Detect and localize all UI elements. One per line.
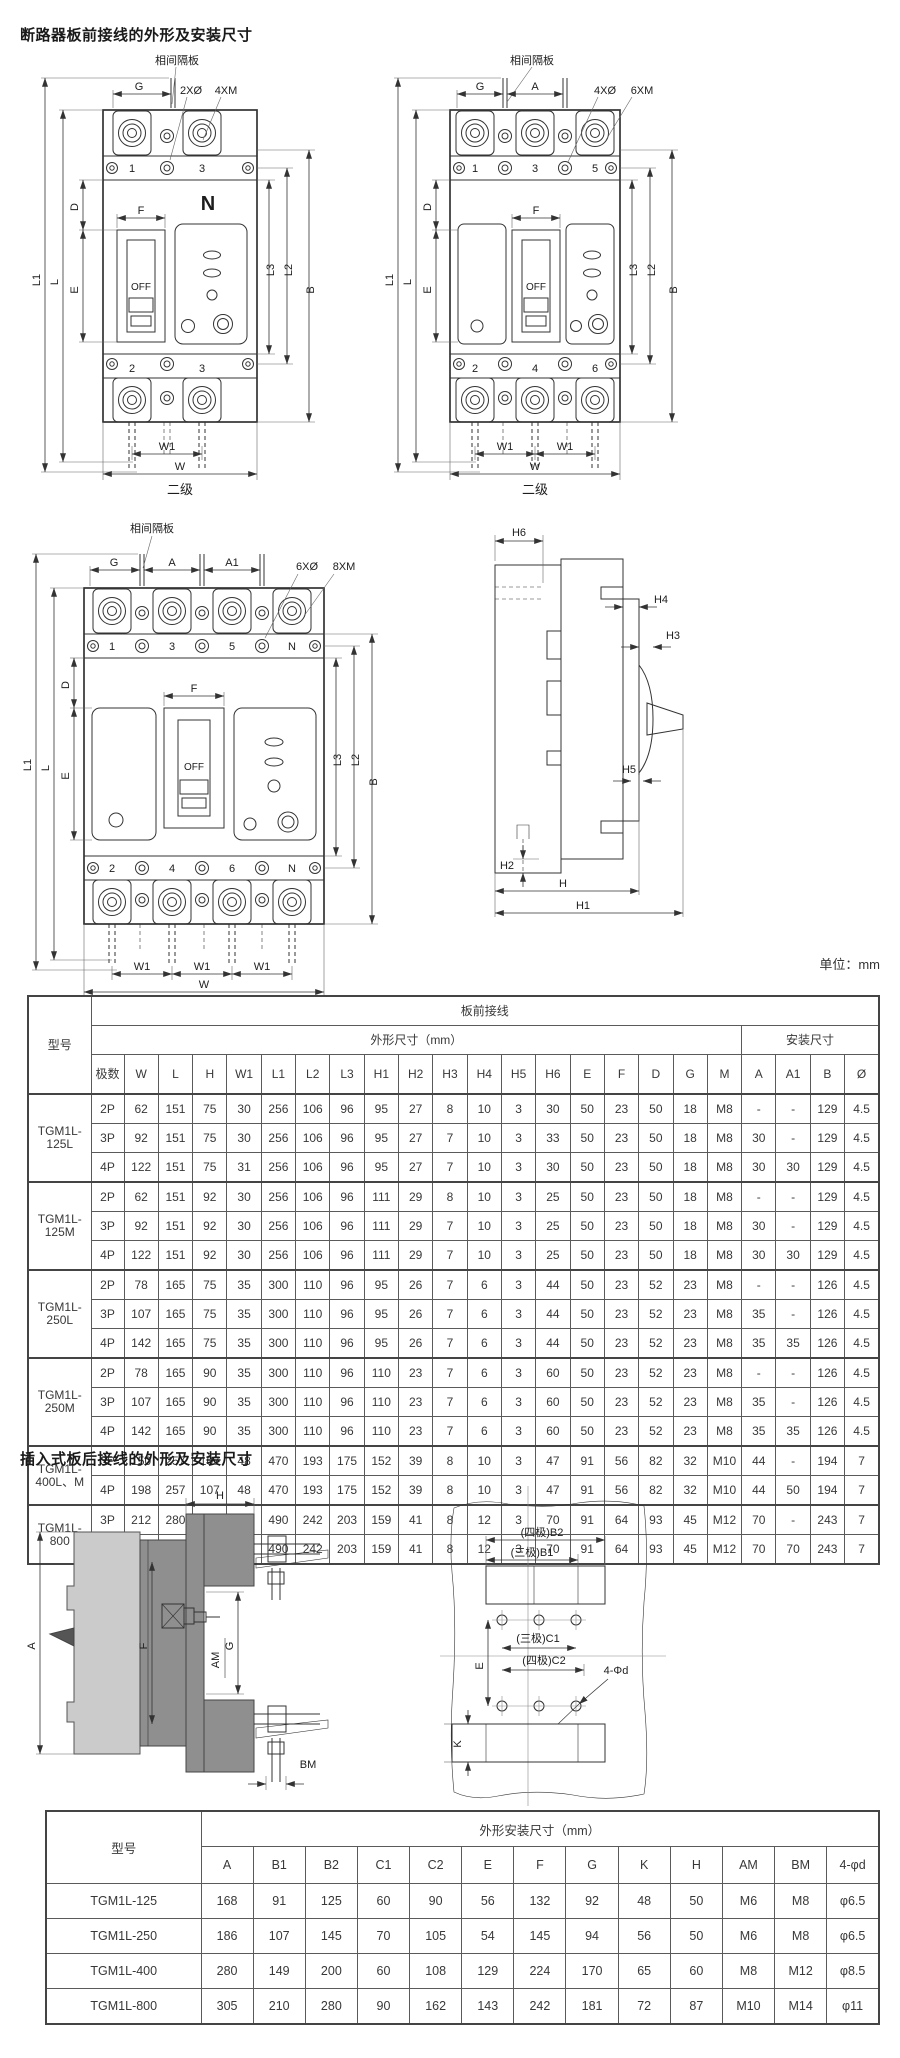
table1-cell: 18 — [673, 1212, 707, 1241]
drawing-cutout-plate: (四极)B2 (三极)B1 (三极)C1 (四极)C2 E K 4-Φd — [438, 1482, 668, 1810]
table1-cell: H6 — [536, 1055, 570, 1095]
table1-cell: 92 — [124, 1124, 158, 1153]
table1-cell: 75 — [193, 1153, 227, 1183]
table2-cell: 70 — [357, 1919, 409, 1954]
table1-cell: 96 — [330, 1329, 364, 1359]
dim-b: B — [368, 778, 380, 785]
table1-cell: 7 — [433, 1124, 467, 1153]
table1-cell: 110 — [296, 1329, 330, 1359]
table1-cell: 4.5 — [845, 1094, 879, 1124]
table1-cell: 7 — [433, 1358, 467, 1388]
table1-cell: 3 — [501, 1182, 535, 1212]
table1-cell: 23 — [604, 1417, 638, 1447]
table1-cell: 111 — [364, 1241, 398, 1271]
table1-cell: 175 — [330, 1446, 364, 1476]
table1-cell: 52 — [639, 1358, 673, 1388]
table1-cell: 23 — [604, 1388, 638, 1417]
table2-cell: 305 — [201, 1989, 253, 2025]
table1-cell: 6 — [467, 1270, 501, 1300]
table1-cell: 45 — [673, 1505, 707, 1535]
dim-l: L — [40, 765, 52, 771]
table1-cell: 4.5 — [845, 1388, 879, 1417]
barrier-label: 相间隔板 — [510, 53, 554, 67]
table1-cell: 29 — [399, 1212, 433, 1241]
table1-cell: 151 — [158, 1124, 192, 1153]
table1-cell: 10 — [467, 1446, 501, 1476]
table1-cell: 26 — [399, 1329, 433, 1359]
table1-cell: 60 — [536, 1417, 570, 1447]
table1-cell: 75 — [193, 1329, 227, 1359]
table1-cell: H — [193, 1055, 227, 1095]
table1-cell: 110 — [296, 1388, 330, 1417]
terminal-b3: 3 — [199, 363, 205, 375]
terminal-3: 3 — [532, 163, 538, 175]
table1-cell: 35 — [742, 1300, 776, 1329]
dimension-lines-2p — [41, 78, 315, 480]
dim-w1b: W1 — [194, 961, 211, 973]
table1-cell: 159 — [364, 1505, 398, 1535]
table2-cell: φ6.5 — [827, 1919, 879, 1954]
table2-cell: 168 — [201, 1884, 253, 1919]
table2-cell: 90 — [357, 1989, 409, 2025]
table1-cell: 3 — [501, 1358, 535, 1388]
dim-w: W — [199, 979, 210, 991]
table1-cell: 27 — [399, 1153, 433, 1183]
table1-cell: 23 — [604, 1094, 638, 1124]
table2-cell: φ8.5 — [827, 1954, 879, 1989]
table1-cell: H1 — [364, 1055, 398, 1095]
table1-cell: 106 — [296, 1124, 330, 1153]
dim-e: E — [474, 1662, 486, 1669]
neutral-label: N — [201, 193, 215, 215]
table1-cell: 129 — [810, 1094, 844, 1124]
drawing-plugin-section: H A F AM G BM — [22, 1488, 342, 1796]
table1-cell: 300 — [261, 1329, 295, 1359]
table1-cell: 3 — [501, 1417, 535, 1447]
dim-a: A — [168, 557, 176, 569]
table1-cell: 78 — [124, 1270, 158, 1300]
table1-cell: 152 — [364, 1446, 398, 1476]
table1-cell: 60 — [536, 1358, 570, 1388]
table2-cell: 92 — [566, 1884, 618, 1919]
table2-cell: 60 — [357, 1954, 409, 1989]
table1-cell: 10 — [467, 1153, 501, 1183]
table1-cell: 7 — [845, 1535, 879, 1565]
table2-cell: 87 — [670, 1989, 722, 2025]
table1-cell: 151 — [158, 1094, 192, 1124]
table1-cell: - — [776, 1358, 810, 1388]
table2-cell: M12 — [775, 1954, 827, 1989]
table1-cell: E — [570, 1055, 604, 1095]
table1-cell: 300 — [261, 1417, 295, 1447]
table2-cell: 145 — [305, 1919, 357, 1954]
table1-cell: 23 — [673, 1358, 707, 1388]
table1-cell: 32 — [673, 1446, 707, 1476]
table1-cell: 8 — [433, 1446, 467, 1476]
table1-cell: 44 — [536, 1329, 570, 1359]
table1-cell: 300 — [261, 1300, 295, 1329]
table1-cell: 4.5 — [845, 1241, 879, 1271]
table1-cell: G — [673, 1055, 707, 1095]
table1-cell: 4.5 — [845, 1153, 879, 1183]
table1-cell: - — [776, 1124, 810, 1153]
terminal-1: 1 — [109, 641, 115, 653]
section1-title: 断路器板前接线的外形及安装尺寸 — [20, 24, 253, 45]
table1-cell: 26 — [399, 1270, 433, 1300]
table2-cell: 132 — [514, 1884, 566, 1919]
table1-cell: 3 — [501, 1212, 535, 1241]
table1-cell: 35 — [742, 1388, 776, 1417]
table1-cell: 50 — [639, 1182, 673, 1212]
dim-l1: L1 — [31, 274, 43, 286]
dim-h: H — [559, 878, 567, 890]
table1-cell: 142 — [124, 1417, 158, 1447]
table2-cell: TGM1L-400 — [46, 1954, 201, 1989]
dim-g: G — [224, 1642, 236, 1651]
table1-cell: 23 — [673, 1270, 707, 1300]
dim-d: D — [60, 681, 72, 689]
dim-w1b: W1 — [557, 441, 574, 453]
table1-cell: - — [776, 1094, 810, 1124]
table2-cell: M8 — [722, 1954, 774, 1989]
table1-cell: 23 — [673, 1300, 707, 1329]
table1-cell: 52 — [639, 1417, 673, 1447]
table1-cell: 4.5 — [845, 1124, 879, 1153]
table2-cell: B1 — [253, 1847, 305, 1884]
dim-w1a: W1 — [134, 961, 151, 973]
terminal-1: 1 — [129, 163, 135, 175]
dim-c2: (四极)C2 — [522, 1653, 565, 1667]
table1-cell: 96 — [330, 1300, 364, 1329]
table1-cell: 96 — [330, 1212, 364, 1241]
table1-cell: 90 — [193, 1417, 227, 1447]
table1-cell: 52 — [639, 1300, 673, 1329]
dim-b: B — [305, 286, 317, 293]
table1-cell: 6 — [467, 1358, 501, 1388]
table1-cell: 44 — [742, 1446, 776, 1476]
table2-cell: C1 — [357, 1847, 409, 1884]
dim-e: E — [60, 772, 72, 779]
table1-cell: 35 — [776, 1329, 810, 1359]
terminal-b6: 6 — [592, 363, 598, 375]
table2-cell: 90 — [410, 1884, 462, 1919]
dim-k: K — [452, 1740, 464, 1748]
table1-cell: 30 — [536, 1094, 570, 1124]
table2-cell: 170 — [566, 1954, 618, 1989]
terminal-5: 5 — [592, 163, 598, 175]
table2-cell: M8 — [775, 1884, 827, 1919]
table2-cell: φ11 — [827, 1989, 879, 2025]
table1-cell: 25 — [536, 1212, 570, 1241]
table2-cell: A — [201, 1847, 253, 1884]
table1-cell: 62 — [124, 1094, 158, 1124]
dim-l3: L3 — [265, 264, 277, 276]
holes-label-1: 6XØ — [296, 561, 318, 573]
off-label: OFF — [526, 282, 546, 293]
side-dimensions — [495, 535, 683, 917]
table1-wrap: 型号板前接线外形尺寸（mm）安装尺寸极数WLHW1L1L2L3H1H2H3H4H… — [27, 995, 880, 1565]
table1-cell: M — [707, 1055, 741, 1095]
table1-cell: 7 — [845, 1446, 879, 1476]
dim-f: F — [138, 205, 145, 217]
table1-cell: 106 — [296, 1212, 330, 1241]
dim-l: L — [49, 279, 61, 285]
table1-cell: TGM1L-250M — [28, 1358, 91, 1446]
table1-cell: 板前接线 — [91, 996, 879, 1026]
table2-cell: BM — [775, 1847, 827, 1884]
table1-cell: TGM1L-125L — [28, 1094, 91, 1182]
table1-cell: 7 — [433, 1329, 467, 1359]
table1-cell: 243 — [810, 1535, 844, 1565]
table1-cell: - — [776, 1446, 810, 1476]
dim-d: D — [69, 203, 81, 211]
table1-cell: 126 — [810, 1358, 844, 1388]
table2-cell: 50 — [670, 1884, 722, 1919]
table1-cell: M8 — [707, 1153, 741, 1183]
table1-cell: 300 — [261, 1358, 295, 1388]
table2-cell: TGM1L-800 — [46, 1989, 201, 2025]
table1-cell: 126 — [810, 1388, 844, 1417]
dim-b1: (三极)B1 — [511, 1545, 554, 1559]
table1-cell: - — [742, 1182, 776, 1212]
table1-cell: W — [124, 1055, 158, 1095]
table1-cell: 50 — [639, 1241, 673, 1271]
table1-cell: 23 — [604, 1124, 638, 1153]
table1-cell: M8 — [707, 1270, 741, 1300]
table1-cell: 52 — [639, 1388, 673, 1417]
dim-d: D — [422, 203, 434, 211]
dim-h3: H3 — [666, 630, 680, 642]
plugin-shapes — [50, 1514, 328, 1782]
table1-cell: 50 — [639, 1212, 673, 1241]
terminal-bn: N — [288, 863, 296, 875]
holes-label: 4-Φd — [604, 1665, 629, 1677]
dim-l3: L3 — [628, 264, 640, 276]
table1-cell: 6 — [467, 1417, 501, 1447]
table1-cell: 92 — [193, 1212, 227, 1241]
table1-cell: 4P — [91, 1153, 124, 1183]
table2-cell: 56 — [462, 1884, 514, 1919]
table1-cell: M10 — [707, 1446, 741, 1476]
dim-l1: L1 — [384, 274, 396, 286]
table1-cell: W1 — [227, 1055, 261, 1095]
dim-a: A — [531, 81, 539, 93]
table1-cell: 4.5 — [845, 1329, 879, 1359]
table1-cell: B — [810, 1055, 844, 1095]
off-label: OFF — [131, 282, 151, 293]
table1-cell: 70 — [776, 1535, 810, 1565]
table1-cell: M8 — [707, 1241, 741, 1271]
table1-cell: 110 — [296, 1270, 330, 1300]
table1-cell: 23 — [399, 1358, 433, 1388]
table2-cell: 72 — [618, 1989, 670, 2025]
table1-cell: 165 — [158, 1358, 192, 1388]
table1-cell: 75 — [193, 1300, 227, 1329]
table2-cell: 56 — [618, 1919, 670, 1954]
table2-cell: TGM1L-125 — [46, 1884, 201, 1919]
table1-cell: 3 — [501, 1124, 535, 1153]
dim-w: W — [175, 461, 186, 473]
table1-cell: 4P — [91, 1417, 124, 1447]
table1-cell: 3 — [501, 1094, 535, 1124]
table2-cell: 50 — [670, 1919, 722, 1954]
drawing-front-3pole: 相间隔板 G A 4XØ 6XM 1 3 5 F OFF L1 L D E L3… — [380, 50, 700, 498]
table1-cell: 30 — [742, 1241, 776, 1271]
table1-cell: 23 — [604, 1153, 638, 1183]
table1-cell: L1 — [261, 1055, 295, 1095]
table1-cell: 3 — [501, 1241, 535, 1271]
unit-note: 单位：mm — [819, 954, 880, 973]
table1-cell: 23 — [604, 1270, 638, 1300]
table2-cell: 181 — [566, 1989, 618, 2025]
dim-g: G — [110, 557, 119, 569]
table1-cell: 96 — [330, 1388, 364, 1417]
barrier-label: 相间隔板 — [155, 53, 199, 67]
table1-cell: 27 — [399, 1094, 433, 1124]
table1-cell: 151 — [158, 1153, 192, 1183]
table1-cell: 300 — [261, 1388, 295, 1417]
table1-cell: 4P — [91, 1329, 124, 1359]
table1-cell: 23 — [604, 1329, 638, 1359]
table1-cell: - — [742, 1358, 776, 1388]
table1-cell: 7 — [433, 1300, 467, 1329]
table1-cell: 122 — [124, 1241, 158, 1271]
table1-cell: 35 — [227, 1358, 261, 1388]
table1-cell: 23 — [673, 1388, 707, 1417]
dim-h4: H4 — [654, 594, 668, 606]
table1-cell: 23 — [604, 1300, 638, 1329]
table1-cell: 50 — [570, 1358, 604, 1388]
table2-cell: F — [514, 1847, 566, 1884]
table1-cell: M8 — [707, 1388, 741, 1417]
table1-cell: M8 — [707, 1124, 741, 1153]
table1-cell: 29 — [399, 1241, 433, 1271]
table1-cell: 50 — [570, 1388, 604, 1417]
table1-cell: 7 — [433, 1153, 467, 1183]
table1-cell: L3 — [330, 1055, 364, 1095]
table2-cell: 200 — [305, 1954, 357, 1989]
off-label: OFF — [184, 762, 204, 773]
table1-cell: 23 — [673, 1417, 707, 1447]
table2-cell: M14 — [775, 1989, 827, 2025]
dim-b: B — [668, 286, 680, 293]
caption-3p: 二级 — [522, 482, 548, 497]
drawing-front-2pole: 相间隔板 G 2XØ 4XM 1 3 N F OFF L1 L D E L3 L… — [25, 50, 335, 498]
dim-am: AM — [210, 1652, 222, 1669]
table2-cell: 94 — [566, 1919, 618, 1954]
table1-cell: 300 — [261, 1270, 295, 1300]
breaker-body-3p — [450, 67, 620, 470]
dim-g: G — [476, 81, 485, 93]
dim-bm: BM — [300, 1759, 317, 1771]
table1-cell: 50 — [570, 1124, 604, 1153]
table1-cell: 126 — [810, 1300, 844, 1329]
table1-cell: 96 — [330, 1094, 364, 1124]
caption-2p: 二级 — [167, 482, 193, 497]
table1-cell: 50 — [570, 1212, 604, 1241]
table1-cell: M8 — [707, 1212, 741, 1241]
table1-cell: 96 — [330, 1241, 364, 1271]
table1-cell: 4.5 — [845, 1358, 879, 1388]
table1-cell: 23 — [604, 1182, 638, 1212]
table1-cell: 110 — [364, 1388, 398, 1417]
terminal-n: N — [288, 641, 296, 653]
labels-2p: 相间隔板 G 2XØ 4XM 1 3 N F OFF L1 L D E L3 L… — [31, 53, 317, 497]
table2-cell: 型号 — [46, 1811, 201, 1884]
table2-cell: M8 — [775, 1919, 827, 1954]
table1-cell: 96 — [330, 1124, 364, 1153]
table2-cell: AM — [722, 1847, 774, 1884]
terminal-3: 3 — [169, 641, 175, 653]
table1-cell: 4.5 — [845, 1212, 879, 1241]
table1-cell: 35 — [742, 1329, 776, 1359]
table1-cell: 126 — [810, 1270, 844, 1300]
table1-cell: 3P — [91, 1124, 124, 1153]
table1-cell: 10 — [467, 1124, 501, 1153]
table1-cell: 23 — [604, 1241, 638, 1271]
table2-cell: 60 — [357, 1884, 409, 1919]
front-wiring-dimension-table: 型号板前接线外形尺寸（mm）安装尺寸极数WLHW1L1L2L3H1H2H3H4H… — [27, 995, 880, 1565]
table1-cell: 165 — [158, 1388, 192, 1417]
table1-cell: 96 — [330, 1182, 364, 1212]
table1-cell: 10 — [467, 1182, 501, 1212]
table1-cell: 52 — [639, 1270, 673, 1300]
table1-cell: - — [776, 1270, 810, 1300]
table1-cell: 256 — [261, 1153, 295, 1183]
table1-cell: 3 — [501, 1446, 535, 1476]
table1-cell: 256 — [261, 1212, 295, 1241]
table1-cell: 2P — [91, 1358, 124, 1388]
table1-cell: 2P — [91, 1182, 124, 1212]
table1-cell: 23 — [604, 1358, 638, 1388]
table1-cell: 45 — [673, 1535, 707, 1565]
table1-cell: 50 — [570, 1094, 604, 1124]
table2-cell: 186 — [201, 1919, 253, 1954]
table2-cell: φ6.5 — [827, 1884, 879, 1919]
labels-4p: 相间隔板 G A A1 6XØ 8XM 1 3 5 N F OFF L1 L D… — [22, 521, 380, 1012]
table1-cell: 256 — [261, 1182, 295, 1212]
table1-cell: 10 — [467, 1241, 501, 1271]
table1-cell: 7 — [845, 1476, 879, 1506]
dim-w: W — [530, 461, 541, 473]
dim-w1a: W1 — [497, 441, 514, 453]
table1-cell: 18 — [673, 1241, 707, 1271]
table1-cell: - — [776, 1212, 810, 1241]
table1-cell: 110 — [296, 1358, 330, 1388]
table2-cell: 54 — [462, 1919, 514, 1954]
table1-cell: 4.5 — [845, 1300, 879, 1329]
table1-cell: 193 — [296, 1446, 330, 1476]
table1-cell: M8 — [707, 1358, 741, 1388]
dim-l1: L1 — [22, 759, 34, 771]
dim-f: F — [138, 1642, 150, 1649]
table1-cell: 95 — [364, 1094, 398, 1124]
dim-l2: L2 — [283, 264, 295, 276]
table1-cell: 6 — [467, 1329, 501, 1359]
table1-cell: - — [776, 1505, 810, 1535]
table1-cell: 92 — [193, 1182, 227, 1212]
table1-cell: 96 — [330, 1153, 364, 1183]
table1-cell: 50 — [570, 1182, 604, 1212]
table1-cell: 10 — [467, 1212, 501, 1241]
table2-cell: B2 — [305, 1847, 357, 1884]
plugin-mounting-dimension-table: 型号外形安装尺寸（mm）AB1B2C1C2EFGKHAMBM4-φdTGM1L-… — [45, 1810, 880, 2025]
table1-cell: 35 — [227, 1417, 261, 1447]
table1-cell: - — [776, 1300, 810, 1329]
table1-cell: 90 — [193, 1388, 227, 1417]
table1-cell: 7 — [433, 1388, 467, 1417]
table1-cell: M8 — [707, 1094, 741, 1124]
